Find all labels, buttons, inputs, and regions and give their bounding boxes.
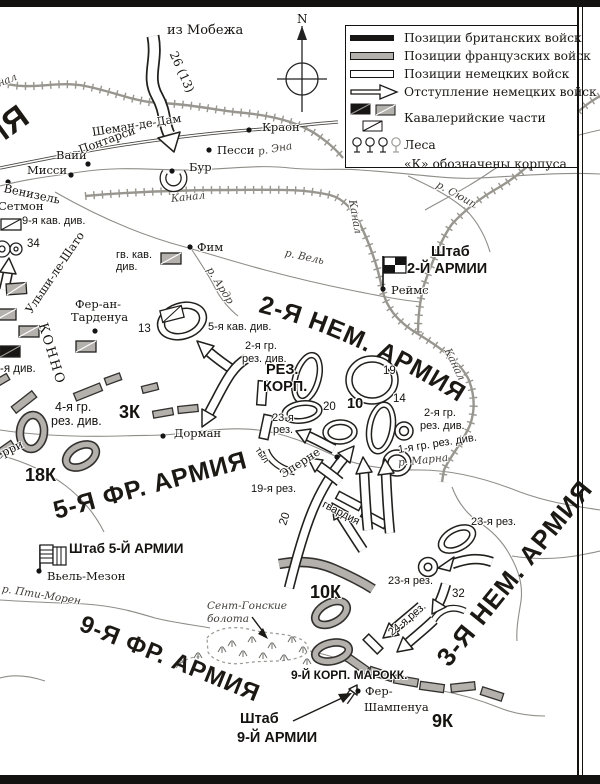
town-label-vielmaison: Вьель-Мезон	[47, 569, 125, 583]
unit-label-32: 32	[452, 588, 465, 600]
corps-label-10k: 10К	[310, 582, 341, 603]
army-german-3: 3-Я НЕМ. АРМИЯ	[430, 474, 598, 672]
hq9-label-2: 9-Й АРМИИ	[237, 730, 317, 746]
corps-label-18k: 18К	[25, 465, 56, 486]
legend-row-british: Позиции британских войск	[350, 29, 577, 47]
unit-label-gr2r-2: рез. див.	[420, 420, 465, 432]
label-from-maubeuge: из Мобежа	[167, 23, 243, 38]
unit-label-korp: КОРП.	[263, 379, 307, 395]
legend-box: Позиции британских войск Позиции француз…	[345, 25, 578, 168]
marsh-label-1: Сент-Гонские	[207, 600, 287, 612]
corps-label-3k: 3К	[119, 402, 140, 423]
unit-label-14: 14	[393, 393, 406, 405]
hq2-label-1: Штаб	[431, 244, 470, 260]
compass-north-label: N	[297, 12, 308, 26]
unit-label-gr2l-1: 2-я гр.	[245, 340, 277, 352]
town-label-bur: Бур	[189, 160, 212, 174]
legend-label: Позиции французских войск	[404, 49, 591, 63]
unit-label-kav9: 9-я кав. див.	[22, 215, 85, 227]
unit-label-gvkav-2: див.	[116, 261, 137, 273]
town-label-pessi: Песси	[217, 143, 254, 157]
retreat-arrow-swatch	[350, 84, 404, 100]
compass-rose	[277, 26, 327, 112]
legend-label: Леса	[404, 138, 436, 152]
legend-label: «К» обозначены корпуса	[404, 157, 567, 171]
hq2-label-2: 2-Й АРМИИ	[407, 261, 487, 277]
marsh-label-2: болота	[207, 613, 249, 625]
unit-label-23a-2: рез.	[273, 424, 293, 436]
unit-label-divx: -я див.	[0, 363, 36, 375]
unit-label-23a-1: 23-я	[272, 412, 294, 424]
unit-label-gr4-1: 4-я гр.	[55, 400, 91, 414]
town-label-reims: Реймс	[391, 283, 429, 297]
army-french-9: 9-Я ФР. АРМИЯ	[76, 611, 264, 708]
legend-row-forest: Леса	[350, 134, 577, 155]
town-label-kraon: Краон	[262, 120, 300, 134]
legend-label: Позиции британских войск	[404, 31, 582, 45]
town-label-setmon: Сетмон	[0, 199, 44, 213]
corps-label-9k: 9К	[432, 711, 453, 732]
unit-label-rez23c: 23-я рез.	[471, 516, 516, 528]
unit-label-13: 13	[138, 323, 151, 335]
british-bar-swatch	[350, 35, 404, 41]
hq5-striped-flag	[40, 545, 66, 570]
unit-label-19: 19	[383, 365, 396, 377]
army-cutoff-label: ИЯ	[0, 97, 36, 156]
bottom-border-bar	[0, 775, 600, 784]
town-label-fersh-1: Фер-	[365, 684, 393, 698]
legend-label: Кавалерийские части	[404, 111, 546, 125]
french-bar-swatch	[350, 52, 404, 60]
legend-row-french: Позиции французских войск	[350, 47, 577, 65]
unit-34-circles	[0, 241, 22, 257]
unit-label-gvkav-1: гв. кав.	[116, 249, 152, 261]
unit-label-kav5: 5-я кав. див.	[208, 321, 271, 333]
unit-label-rez23b: 23-я рез.	[388, 575, 433, 587]
unit-label-gr4-2: рез. див.	[51, 414, 102, 428]
army-french-5: 5-Я ФР. АРМИЯ	[50, 446, 250, 525]
town-label-fersh-2: Шампенуа	[364, 700, 429, 714]
legend-row-german: Позиции немецких войск	[350, 65, 577, 83]
town-label-fim: Фим	[197, 240, 223, 254]
unit-label-10: 10	[347, 396, 363, 412]
german-bar-swatch	[350, 70, 404, 78]
unit-label-gr2r-1: 2-я гр.	[424, 407, 456, 419]
legend-row-corps-note: «К» обозначены корпуса	[350, 155, 577, 172]
historical-map: 2-Я НЕМ. АРМИЯ 3-Я НЕМ. АРМИЯ 5-Я ФР. АР…	[0, 0, 600, 784]
unit-label-20: 20	[323, 401, 336, 413]
legend-row-retreat: Отступление немецких войск	[350, 83, 577, 101]
hq5-label: Штаб 5-Й АРМИИ	[69, 541, 183, 556]
hq9-label-1: Штаб	[240, 711, 279, 727]
right-border-inner	[582, 0, 583, 784]
legend-row-cavalry: Кавалерийские части	[350, 101, 577, 134]
top-border-bar	[0, 0, 600, 7]
unit-label-rez19: 19-я рез.	[251, 483, 296, 495]
town-label-feran-2: Тарденуа	[71, 310, 128, 324]
unit-label-rez: РЕЗ.	[266, 362, 298, 378]
legend-label: Отступление немецких войск	[404, 85, 597, 99]
unit-label-34: 34	[27, 238, 40, 250]
town-label-dorman: Дорман	[174, 426, 221, 440]
unit-label-marokk: 9-Й КОРП. МАРОКК.	[291, 668, 407, 682]
town-label-feran-1: Фер-ан-	[75, 297, 121, 311]
trees-swatch	[350, 135, 404, 155]
cavalry-flags-swatch	[350, 102, 404, 134]
legend-label: Позиции немецких войск	[404, 67, 569, 81]
town-label-missi: Мисси	[27, 163, 67, 177]
